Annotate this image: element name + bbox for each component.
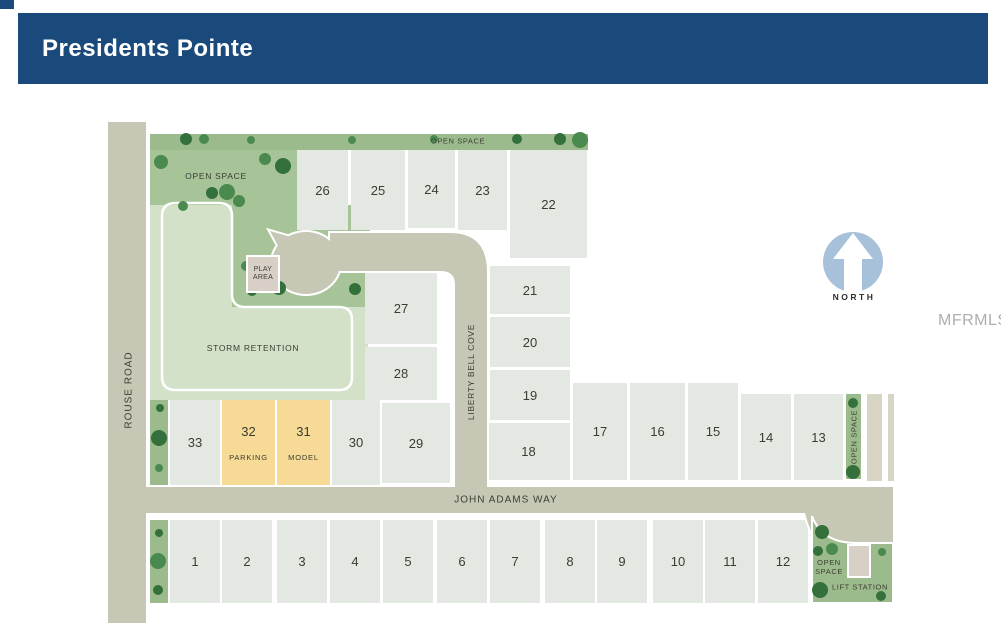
easement-strip-1	[866, 393, 883, 482]
tree-icon	[150, 553, 166, 569]
tree-icon	[878, 548, 886, 556]
tree-icon	[815, 525, 829, 539]
john-adams-way-label: JOHN ADAMS WAY	[454, 495, 557, 506]
trees-layer	[150, 132, 886, 601]
tree-icon	[848, 398, 858, 408]
liberty-bell-cove-label: LIBERTY BELL COVE	[466, 324, 476, 420]
tree-icon	[812, 582, 828, 598]
rouse-road-label: ROUSE ROAD	[124, 351, 135, 428]
storm-retention-label: STORM RETENTION	[207, 343, 300, 353]
tree-icon	[178, 201, 188, 211]
tree-icon	[233, 195, 245, 207]
play-area-label: PLAYAREA	[253, 266, 273, 283]
road-network	[0, 0, 1001, 640]
tree-icon	[206, 187, 218, 199]
tree-icon	[349, 283, 361, 295]
tree-icon	[155, 464, 163, 472]
tree-icon	[155, 529, 163, 537]
tree-icon	[151, 430, 167, 446]
tree-icon	[247, 136, 255, 144]
open-space-top-label: OPEN SPACE	[431, 137, 485, 146]
tree-icon	[219, 184, 235, 200]
mls-watermark: MFRMLS	[938, 312, 1001, 330]
easement-strip-2	[887, 393, 895, 482]
site-plan-page: Presidents Pointe 1234567891011121314151…	[0, 0, 1001, 640]
tree-icon	[826, 543, 838, 555]
open-space-left-label: OPEN SPACE	[185, 171, 247, 181]
north-label: NORTH	[833, 292, 876, 302]
tree-icon	[846, 465, 860, 479]
north-compass	[823, 232, 883, 292]
open-space-right-label: OPEN SPACE	[850, 410, 859, 464]
tree-icon	[554, 133, 566, 145]
lift-station-pad	[848, 545, 870, 577]
tree-icon	[572, 132, 588, 148]
tree-icon	[512, 134, 522, 144]
tree-icon	[154, 155, 168, 169]
open-space-br-label: OPENSPACE	[815, 558, 843, 576]
storm-retention-outline	[162, 203, 352, 390]
tree-icon	[156, 404, 164, 412]
tree-icon	[259, 153, 271, 165]
tree-icon	[348, 136, 356, 144]
play-area-box: PLAYAREA	[248, 257, 278, 291]
tree-icon	[876, 591, 886, 601]
tree-icon	[180, 133, 192, 145]
lift-station-label: LIFT STATION	[832, 583, 888, 592]
tree-icon	[813, 546, 823, 556]
tree-icon	[153, 585, 163, 595]
tree-icon	[199, 134, 209, 144]
tree-icon	[275, 158, 291, 174]
